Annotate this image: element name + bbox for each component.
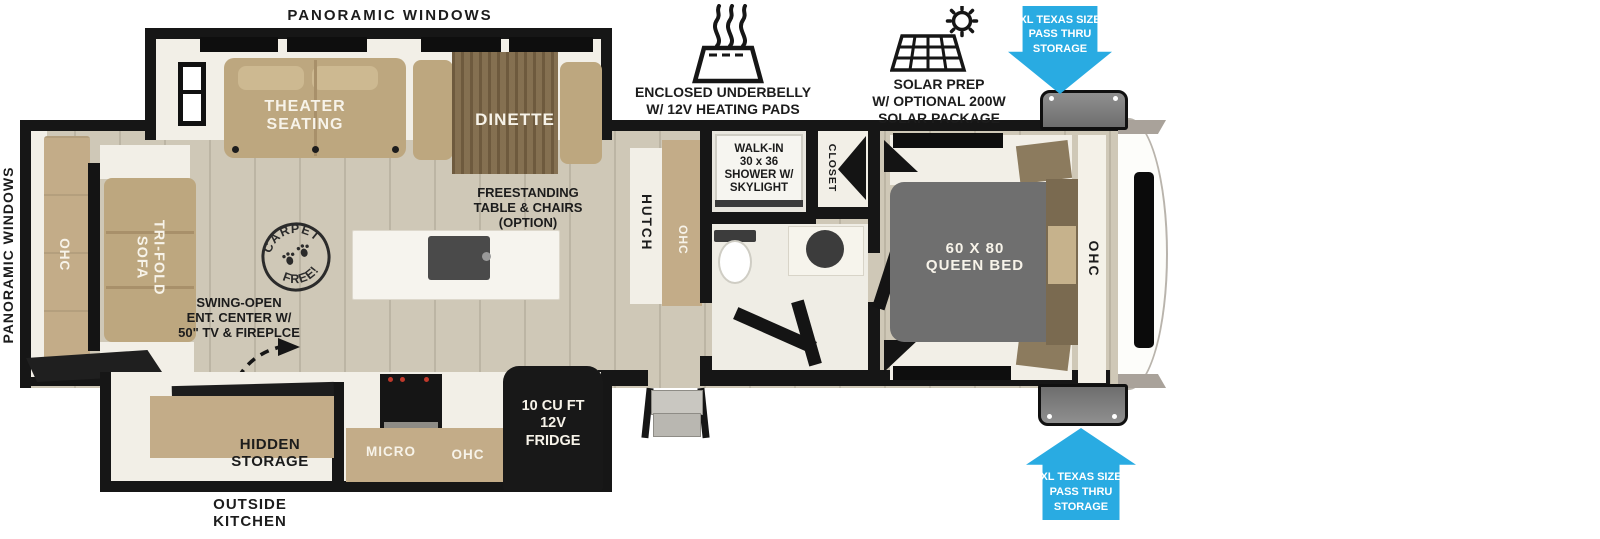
bedroom-divider-upper (868, 131, 880, 253)
panoramic-windows-rear-label: PANORAMIC WINDOWS (0, 159, 16, 351)
bedroom-wardrobe-top (1016, 140, 1072, 184)
entry-step-2 (653, 413, 701, 437)
kitchen-ohc-label: OHC (438, 447, 498, 463)
solar-panel-sun-icon (890, 6, 986, 76)
panoramic-windows-top-label: PANORAMIC WINDOWS (240, 7, 540, 24)
bedroom-ohc-label: OHC (1086, 227, 1102, 291)
rear-ohc-label: OHC (56, 230, 72, 280)
pass-thru-callout-bottom: XL TEXAS SIZE PASS THRU STORAGE (1026, 428, 1136, 520)
fridge-label: 10 CU FT 12V FRIDGE (507, 398, 599, 450)
slideout-window-1 (200, 37, 278, 52)
outside-kitchen-label: OUTSIDE KITCHEN (175, 496, 325, 531)
toilet (718, 240, 752, 284)
island-sink (428, 236, 490, 280)
walk-in-shower-label: WALK-IN 30 x 36 SHOWER W/ SKYLIGHT (711, 143, 807, 195)
bath-wall-left-stub (700, 356, 712, 386)
theater-headrest-left (238, 66, 304, 90)
theater-cupholder-3 (392, 146, 399, 153)
theater-headrest-right (312, 66, 378, 90)
bedroom-divider-lower (868, 302, 880, 386)
pass-thru-door-top-screw-1 (1049, 96, 1054, 101)
vanity-sink (806, 230, 844, 268)
bed-headboard-pillow (1048, 226, 1076, 284)
queen-bed-label: 60 X 80 QUEEN BED (900, 240, 1050, 275)
pass-thru-door-top-screw-2 (1113, 96, 1118, 101)
slideout-window-4 (509, 37, 593, 52)
heating-pad-steam-icon (686, 4, 770, 84)
pass-thru-door-bottom-screw-2 (1112, 414, 1117, 419)
pass-thru-door-bottom (1038, 384, 1128, 426)
solar-prep-label: SOLAR PREP W/ OPTIONAL 200W SOLAR PACKAG… (833, 76, 1045, 126)
rear-tv-strip (88, 163, 100, 351)
theater-cupholder-2 (312, 146, 319, 153)
rear-end-table-top (100, 145, 190, 179)
slideout-side-window-bar (181, 90, 203, 94)
freestanding-table-label: FREESTANDING TABLE & CHAIRS (OPTION) (440, 186, 616, 231)
hidden-storage-label: HIDDEN STORAGE (190, 436, 350, 471)
dinette-bench-left (413, 60, 453, 160)
island-faucet (482, 252, 491, 261)
paw-prints (280, 243, 312, 267)
slideout-side-window (178, 62, 206, 126)
stove-knob-1 (388, 377, 393, 382)
closet-bottom-wall (806, 207, 874, 219)
shower-bottom-wall (700, 212, 816, 224)
closet-divider-wall (806, 131, 818, 219)
dinette-label: DINETTE (450, 110, 580, 130)
entry-step-1 (651, 390, 703, 415)
svg-text:FREE!: FREE! (278, 261, 324, 291)
stove-knob-2 (400, 377, 405, 382)
hutch-ohc-label: OHC (675, 210, 689, 270)
bedroom-window-bottom (893, 366, 1011, 380)
hutch-label: HUTCH (638, 177, 654, 269)
shower-base-strip (715, 200, 803, 207)
bedroom-window-top (893, 133, 1003, 148)
theater-seating-label: THEATER SEATING (245, 98, 365, 135)
micro-label: MICRO (352, 444, 430, 460)
floorplan-diagram: THEATER SEATING DINETTE TRI-FOLD SOFA OH… (0, 0, 1600, 539)
enclosed-underbelly-label: ENCLOSED UNDERBELLY W/ 12V HEATING PADS (610, 84, 836, 118)
theater-cupholder-1 (232, 146, 239, 153)
slideout-window-3 (421, 37, 501, 52)
pass-thru-door-bottom-screw-1 (1047, 414, 1052, 419)
stove-knob-3 (424, 377, 429, 382)
closet-label: CLOSET (826, 134, 838, 202)
slideout-window-2 (287, 37, 367, 52)
front-window-strip (1134, 172, 1154, 348)
